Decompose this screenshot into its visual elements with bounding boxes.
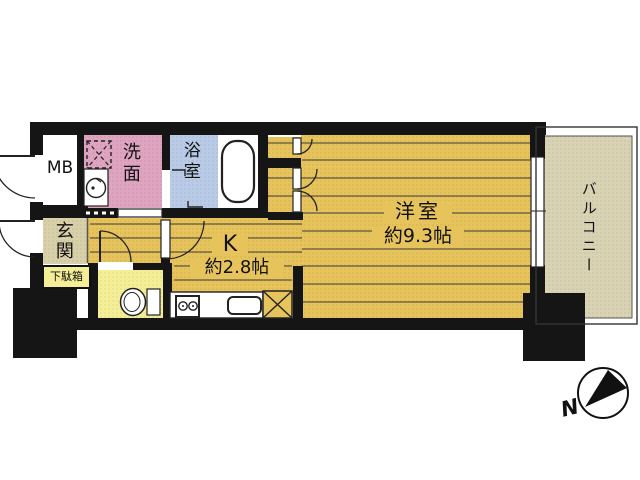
kitchen-label: K — [212, 233, 248, 256]
balcony-label: バルコニー — [580, 181, 596, 276]
toilet-icon — [121, 289, 161, 316]
floorplan-page: MB 洗面 浴室 玄関 下駄箱 K 約2.8帖 洋室 約9.3帖 バルコニー N — [0, 0, 640, 480]
sink-icon — [228, 297, 261, 314]
shoe-cabinet-label: 下駄箱 — [43, 271, 90, 283]
entrance-door-icon — [0, 221, 35, 257]
refrigerator-space-icon — [263, 291, 292, 318]
western-room-size-label: 約9.3帖 — [372, 227, 464, 247]
floorplan-drawing — [0, 0, 640, 480]
western-room-label: 洋室 — [384, 201, 452, 222]
kitchen-size-label: 約2.8帖 — [190, 259, 284, 278]
bathroom-label: 浴室 — [180, 141, 198, 183]
washroom-sliding-door — [118, 209, 162, 217]
washbasin-icon — [84, 169, 108, 206]
washroom-label: 洗面 — [120, 142, 139, 186]
compass-icon — [578, 368, 628, 418]
meter-box-label: MB — [43, 160, 77, 178]
entrance-label: 玄関 — [53, 221, 72, 261]
kitchen-counter — [170, 292, 263, 318]
stove-icon — [176, 296, 199, 317]
balcony-window — [531, 157, 544, 267]
bathtub-icon — [222, 141, 254, 202]
meter-box-door-icon — [0, 156, 35, 198]
